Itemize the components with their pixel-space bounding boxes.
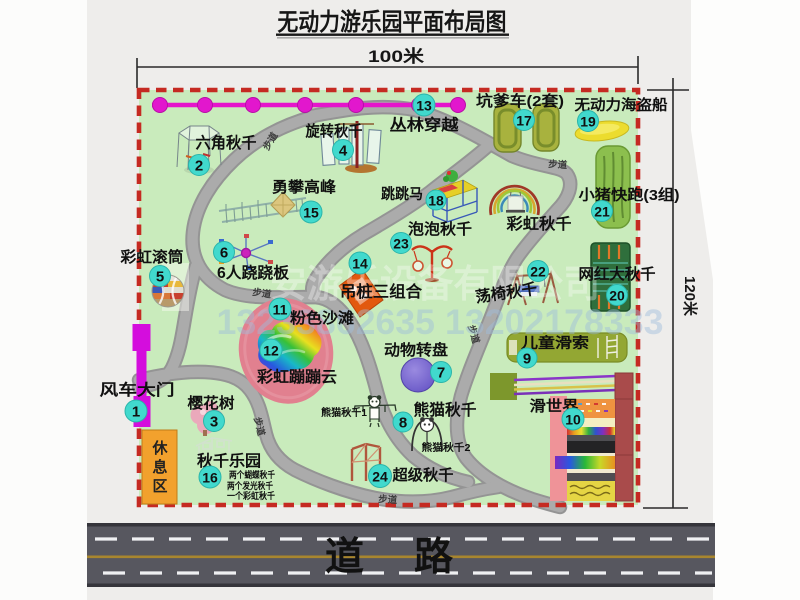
svg-text:两个蝴蝶秋千: 两个蝴蝶秋千 bbox=[229, 469, 275, 480]
svg-text:超级秋千: 超级秋千 bbox=[391, 466, 453, 484]
svg-text:樱花树: 樱花树 bbox=[188, 394, 235, 412]
svg-text:吊桩三组合: 吊桩三组合 bbox=[340, 282, 423, 301]
svg-text:丛林穿越: 丛林穿越 bbox=[390, 115, 460, 134]
svg-text:彩虹滚筒: 彩虹滚筒 bbox=[119, 248, 183, 266]
svg-text:7: 7 bbox=[437, 365, 445, 382]
svg-text:一个彩虹秋千: 一个彩虹秋千 bbox=[227, 490, 275, 501]
svg-text:熊猫秋千2: 熊猫秋千2 bbox=[422, 441, 471, 454]
svg-text:步道: 步道 bbox=[548, 158, 568, 171]
svg-text:泡泡秋千: 泡泡秋千 bbox=[408, 220, 472, 238]
svg-text:4: 4 bbox=[339, 143, 348, 160]
svg-text:跳跳马: 跳跳马 bbox=[381, 185, 423, 203]
svg-text:旋转秋千: 旋转秋千 bbox=[305, 122, 363, 140]
svg-text:休: 休 bbox=[151, 439, 168, 457]
svg-text:道: 道 bbox=[325, 536, 364, 579]
svg-text:14: 14 bbox=[352, 256, 368, 272]
svg-text:安游乐设备有限公司: 安游乐设备有限公司 bbox=[270, 264, 600, 306]
svg-text:网红大秋千: 网红大秋千 bbox=[579, 265, 656, 283]
svg-text:19: 19 bbox=[580, 114, 596, 130]
svg-text:小猪快跑(3组): 小猪快跑(3组) bbox=[579, 186, 680, 204]
svg-text:16: 16 bbox=[202, 470, 218, 486]
svg-text:13: 13 bbox=[416, 98, 432, 114]
svg-text:熊猫秋千1: 熊猫秋千1 bbox=[321, 406, 367, 419]
svg-text:无动力游乐园平面布局图: 无动力游乐园平面布局图 bbox=[278, 8, 507, 36]
svg-text:18: 18 bbox=[428, 193, 444, 209]
svg-text:六角秋千: 六角秋千 bbox=[196, 133, 257, 152]
svg-text:动物转盘: 动物转盘 bbox=[384, 341, 448, 359]
svg-text:22: 22 bbox=[530, 264, 546, 280]
svg-text:彩虹蹦蹦云: 彩虹蹦蹦云 bbox=[256, 367, 337, 386]
svg-text:路: 路 bbox=[414, 536, 454, 579]
svg-text:区: 区 bbox=[152, 478, 167, 495]
svg-text:5: 5 bbox=[156, 269, 164, 286]
svg-text:两个发光秋千: 两个发光秋千 bbox=[227, 480, 273, 491]
svg-text:2: 2 bbox=[195, 158, 203, 175]
svg-text:1: 1 bbox=[132, 404, 140, 421]
svg-text:24: 24 bbox=[372, 469, 388, 485]
svg-text:12: 12 bbox=[263, 343, 279, 359]
svg-text:15: 15 bbox=[303, 205, 319, 221]
svg-text:20: 20 bbox=[609, 288, 625, 304]
svg-text:11: 11 bbox=[273, 302, 288, 318]
svg-text:10: 10 bbox=[565, 412, 581, 428]
svg-text:8: 8 bbox=[399, 415, 407, 432]
svg-text:息: 息 bbox=[152, 458, 167, 476]
svg-text:120米: 120米 bbox=[681, 276, 699, 317]
svg-text:熊猫秋千: 熊猫秋千 bbox=[414, 400, 477, 419]
svg-text:23: 23 bbox=[393, 236, 409, 252]
svg-text:9: 9 bbox=[523, 351, 531, 368]
svg-text:21: 21 bbox=[594, 204, 610, 220]
svg-text:6: 6 bbox=[220, 245, 228, 262]
svg-text:勇攀高峰: 勇攀高峰 bbox=[272, 178, 337, 196]
svg-text:17: 17 bbox=[516, 113, 532, 129]
svg-text:粉色沙滩: 粉色沙滩 bbox=[290, 309, 354, 327]
svg-text:风车大门: 风车大门 bbox=[100, 380, 175, 399]
svg-text:坑爹车(2套): 坑爹车(2套) bbox=[476, 92, 564, 110]
svg-text:100米: 100米 bbox=[368, 46, 425, 66]
svg-text:步道: 步道 bbox=[378, 493, 398, 506]
svg-text:6人跷跷板: 6人跷跷板 bbox=[217, 263, 290, 282]
svg-text:3: 3 bbox=[210, 414, 218, 431]
svg-text:彩虹秋千: 彩虹秋千 bbox=[505, 214, 572, 233]
